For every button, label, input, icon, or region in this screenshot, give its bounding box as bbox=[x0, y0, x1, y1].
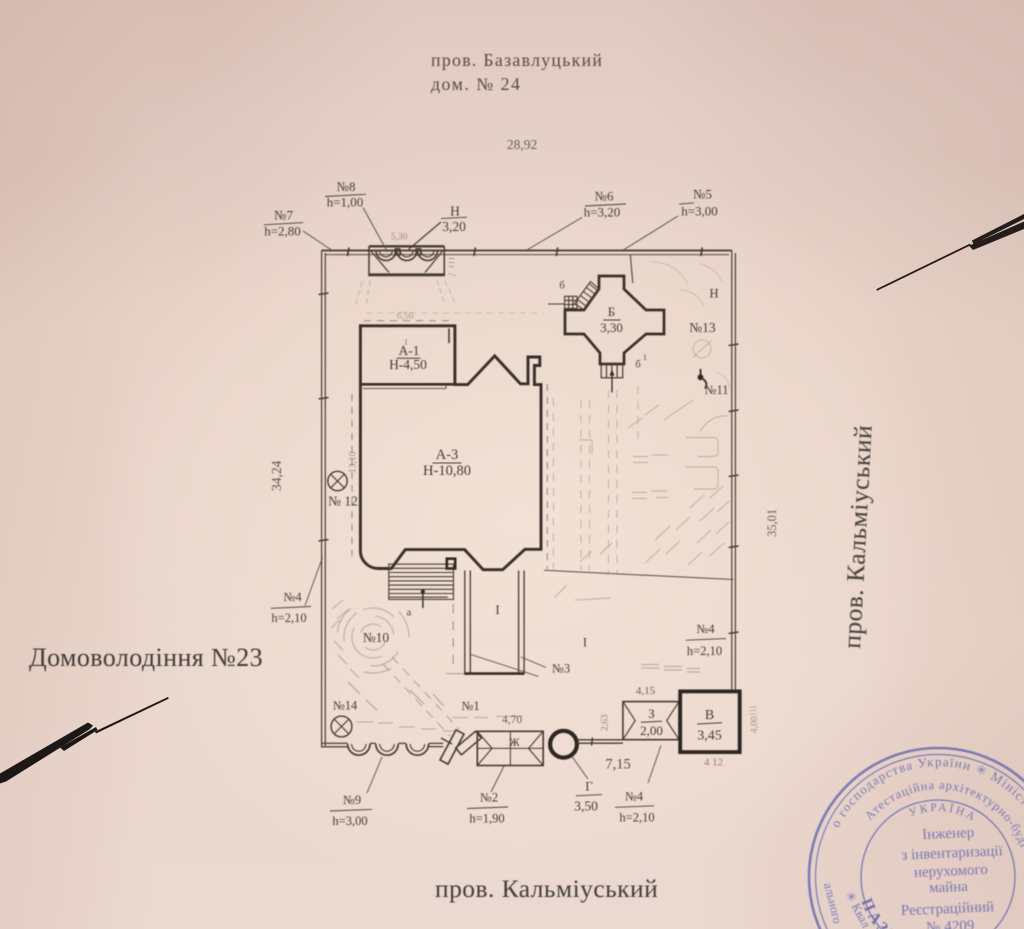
svg-text:А-3: А-3 bbox=[436, 447, 459, 463]
svg-text:№1: №1 bbox=[461, 699, 479, 713]
svg-text:Н-10,80: Н-10,80 bbox=[423, 463, 471, 479]
svg-text:Н: Н bbox=[709, 287, 718, 301]
svg-text:h=2,80: h=2,80 bbox=[264, 224, 301, 239]
svg-text:h=2,10: h=2,10 bbox=[271, 611, 306, 625]
svg-text:В: В bbox=[705, 708, 714, 723]
svg-text:4,00: 4,00 bbox=[750, 716, 760, 733]
svg-text:б: б bbox=[559, 281, 564, 292]
svg-text:1: 1 bbox=[643, 353, 647, 362]
svg-text:4,15: 4,15 bbox=[636, 685, 656, 697]
svg-text:Інженер: Інженер bbox=[922, 825, 975, 843]
svg-text:№8: №8 bbox=[337, 179, 356, 194]
svg-text:майна: майна bbox=[929, 879, 969, 897]
svg-text:№4: №4 bbox=[283, 590, 302, 604]
svg-text:4 12: 4 12 bbox=[704, 757, 723, 769]
svg-text:а: а bbox=[407, 608, 412, 619]
svg-text:h=3,00: h=3,00 bbox=[681, 204, 718, 219]
svg-text:3,30: 3,30 bbox=[600, 320, 623, 335]
svg-text:h=1,90: h=1,90 bbox=[469, 812, 504, 826]
svg-text:13,10: 13,10 bbox=[349, 451, 359, 473]
svg-text:1: 1 bbox=[404, 338, 408, 347]
svg-text:пров. Базавлуцький: пров. Базавлуцький bbox=[431, 50, 603, 70]
svg-text:Б: Б bbox=[608, 304, 615, 319]
svg-text:7,15: 7,15 bbox=[605, 757, 630, 773]
svg-text:h=3,00: h=3,00 bbox=[332, 814, 367, 828]
svg-text:Н: Н bbox=[450, 204, 460, 219]
svg-text:34,24: 34,24 bbox=[269, 460, 284, 491]
svg-text:пров. Кальміуський: пров. Кальміуський bbox=[435, 874, 658, 903]
svg-text:2,63: 2,63 bbox=[601, 714, 611, 731]
svg-text:3,45: 3,45 bbox=[697, 729, 722, 744]
svg-text:h=1,00: h=1,00 bbox=[327, 195, 364, 210]
svg-text:№ 4209: № 4209 bbox=[926, 918, 975, 929]
svg-text:2,00: 2,00 bbox=[640, 723, 663, 738]
svg-text:З: З bbox=[648, 707, 654, 721]
svg-text:h=2,10: h=2,10 bbox=[687, 644, 722, 658]
svg-text:дом. № 24: дом. № 24 bbox=[431, 74, 521, 94]
svg-text:№2: №2 bbox=[480, 791, 498, 805]
svg-text:№4: №4 bbox=[696, 622, 715, 636]
svg-text:6,50: 6,50 bbox=[397, 312, 414, 322]
svg-text:І: І bbox=[583, 636, 587, 650]
svg-text:№5: №5 bbox=[693, 187, 712, 202]
svg-text:№ 12: № 12 bbox=[328, 494, 358, 509]
svg-text:35,01: 35,01 bbox=[765, 509, 779, 537]
svg-text:Домоволодіння №23: Домоволодіння №23 bbox=[29, 643, 263, 672]
svg-text:А-1: А-1 bbox=[399, 343, 420, 358]
svg-text:№13: №13 bbox=[689, 320, 716, 335]
svg-text:№4: №4 bbox=[625, 790, 644, 804]
svg-text:5,30: 5,30 bbox=[391, 233, 408, 243]
svg-text:№11: №11 bbox=[705, 383, 729, 397]
svg-text:№7: №7 bbox=[274, 208, 293, 223]
svg-text:h=3,20: h=3,20 bbox=[584, 205, 621, 220]
svg-text:І: І bbox=[495, 602, 499, 617]
svg-text:h=2,10: h=2,10 bbox=[619, 811, 654, 825]
svg-text:3,50: 3,50 bbox=[574, 799, 598, 814]
svg-text:нерухомого: нерухомого bbox=[914, 862, 989, 881]
svg-text:№10: №10 bbox=[363, 630, 390, 645]
svg-text:4,70: 4,70 bbox=[502, 714, 522, 726]
svg-text:Н-4,50: Н-4,50 bbox=[389, 357, 427, 372]
svg-text:№9: №9 bbox=[343, 793, 361, 807]
svg-text:Ж: Ж bbox=[509, 737, 520, 749]
svg-text:№3: №3 bbox=[552, 662, 570, 676]
svg-text:№6: №6 bbox=[595, 189, 614, 204]
svg-text:28,92: 28,92 bbox=[507, 137, 537, 152]
svg-text:Г: Г bbox=[585, 779, 593, 794]
svg-text:№14: №14 bbox=[333, 699, 358, 713]
svg-text:б: б bbox=[635, 360, 640, 371]
svg-text:3,20: 3,20 bbox=[442, 219, 466, 234]
